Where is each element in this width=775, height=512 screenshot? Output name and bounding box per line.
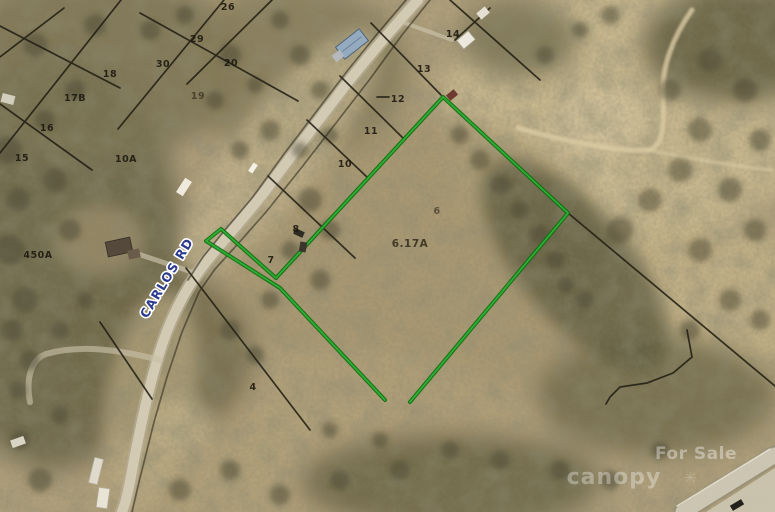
acreage-label: 6.17A xyxy=(392,238,429,250)
parcel-label: 26 xyxy=(221,2,235,13)
tree-canopy xyxy=(576,291,594,309)
tree-canopy xyxy=(511,201,529,219)
parcel-label: 30 xyxy=(156,59,170,70)
aerial-parcel-map: 26 29 30 20 18 19 17B 16 15 10A 450A 14 … xyxy=(0,0,775,512)
parcel-label: 16 xyxy=(40,123,54,134)
parcel-label: 14 xyxy=(446,29,460,40)
parcel-label: 10 xyxy=(338,159,352,170)
parcel-label: 4 xyxy=(249,382,256,393)
tree-canopy xyxy=(271,11,289,29)
tree-canopy xyxy=(698,48,722,72)
tree-canopy xyxy=(557,277,573,293)
parcel-label: 18 xyxy=(103,69,117,80)
parcel-label: 450A xyxy=(23,250,52,261)
tree-canopy xyxy=(290,45,310,65)
tree-canopy xyxy=(719,289,741,311)
tree-canopy xyxy=(261,291,279,309)
tree-canopy xyxy=(607,217,633,243)
tree-canopy xyxy=(750,310,770,330)
tree-canopy xyxy=(77,292,93,308)
parcel-label: 20 xyxy=(224,58,238,69)
parcel-label: 19 xyxy=(191,91,205,102)
tree-canopy xyxy=(59,219,81,241)
tree-canopy xyxy=(688,238,712,262)
tree-canopy xyxy=(638,188,662,212)
tree-canopy xyxy=(176,6,194,24)
tree-canopy xyxy=(451,126,469,144)
tree-canopy xyxy=(441,441,459,459)
tree-canopy xyxy=(733,78,757,102)
canopy-logo-icon: ✳ xyxy=(684,469,697,487)
parcel-label: 6 xyxy=(433,206,440,217)
tree-canopy xyxy=(718,178,742,202)
parcel-label: 15 xyxy=(15,153,29,164)
tree-canopy xyxy=(668,158,692,182)
tree-canopy xyxy=(43,168,67,192)
tree-canopy xyxy=(572,22,588,38)
parcel-label: 7 xyxy=(267,255,274,266)
tree-canopy xyxy=(749,129,771,151)
tree-canopy xyxy=(322,422,338,438)
tree-canopy xyxy=(546,251,564,269)
parcel-label: 13 xyxy=(417,64,431,75)
tree-canopy xyxy=(688,118,712,142)
tree-canopy xyxy=(169,479,191,501)
tree-canopy xyxy=(680,320,700,340)
tree-canopy xyxy=(530,225,550,245)
tree-canopy xyxy=(311,81,329,99)
tree-canopy xyxy=(270,485,290,505)
tree-canopy xyxy=(206,91,224,109)
tree-canopy xyxy=(9,381,27,399)
tree-canopy xyxy=(659,79,681,101)
tree-canopy xyxy=(260,120,280,140)
tree-canopy xyxy=(6,188,30,212)
map-canvas: 26 29 30 20 18 19 17B 16 15 10A 450A 14 … xyxy=(0,0,775,512)
tree-canopy xyxy=(601,6,619,24)
mobile-home-2 xyxy=(96,487,110,508)
tree-canopy xyxy=(51,406,69,424)
tree-canopy xyxy=(12,287,38,313)
tree-canopy xyxy=(51,321,69,339)
tree-canopy xyxy=(744,219,766,241)
tree-canopy xyxy=(220,320,240,340)
tree-canopy xyxy=(231,141,249,159)
tree-canopy xyxy=(372,432,388,448)
tree-canopy xyxy=(310,270,330,290)
parcel-label: 8 xyxy=(292,224,299,235)
tree-canopy xyxy=(28,468,52,492)
parcel-label: 12 xyxy=(391,94,405,105)
parcel-label: 10A xyxy=(115,154,137,165)
watermark-for-sale: For Sale xyxy=(655,444,737,464)
tree-canopy xyxy=(220,460,240,480)
tree-canopy xyxy=(490,450,510,470)
tree-canopy xyxy=(490,175,510,195)
parcel-label: 11 xyxy=(364,126,378,137)
tree-canopy xyxy=(330,470,350,490)
tree-canopy xyxy=(470,150,490,170)
parcel-label: 17B xyxy=(64,93,86,104)
parcel-label: 29 xyxy=(190,34,204,45)
tree-canopy xyxy=(536,46,554,64)
tree-canopy xyxy=(292,142,308,158)
tree-canopy xyxy=(390,460,410,480)
tree-canopy xyxy=(1,319,23,341)
tree-canopy xyxy=(20,350,40,370)
watermark-canopy: canopy xyxy=(567,465,662,490)
